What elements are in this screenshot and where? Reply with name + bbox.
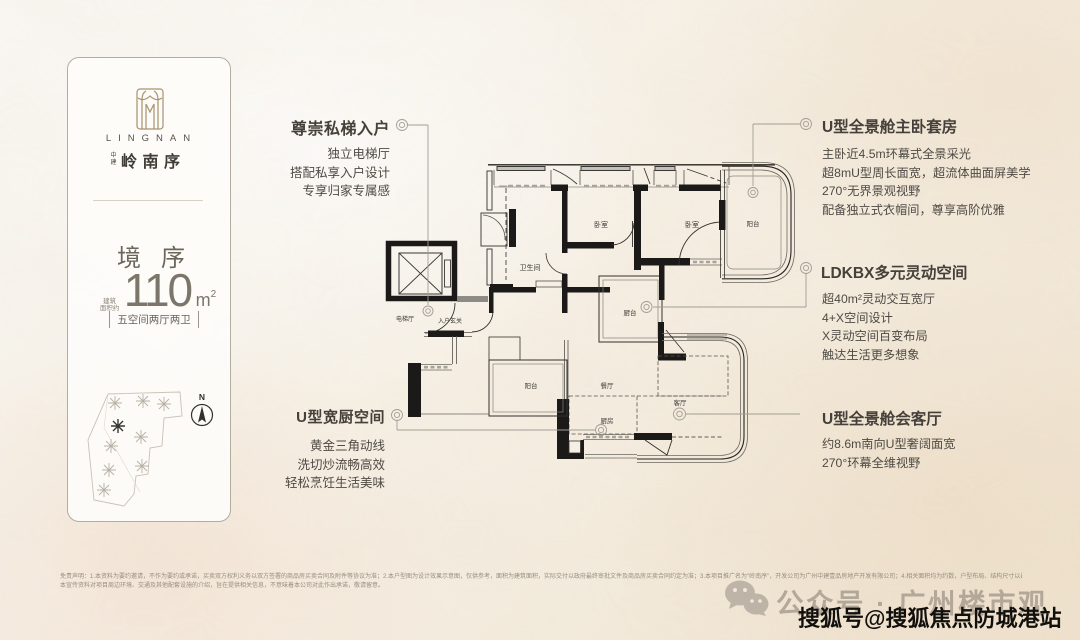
svg-text:厨房: 厨房 [601, 416, 614, 425]
svg-text:客厅: 客厅 [674, 398, 688, 407]
svg-text:阳台: 阳台 [525, 381, 538, 390]
svg-text:卫生间: 卫生间 [520, 263, 541, 272]
svg-text:电梯厅: 电梯厅 [396, 315, 414, 323]
svg-text:餐厅: 餐厅 [601, 381, 615, 390]
svg-text:卧室: 卧室 [594, 220, 608, 229]
svg-text:阳台: 阳台 [747, 219, 760, 228]
svg-text:厨台: 厨台 [624, 308, 637, 317]
svg-text:卧室: 卧室 [685, 220, 699, 229]
svg-text:入户玄关: 入户玄关 [438, 317, 462, 325]
